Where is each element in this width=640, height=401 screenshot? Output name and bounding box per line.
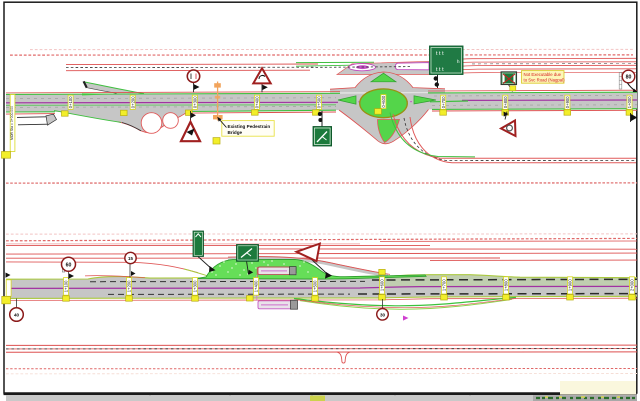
svg-text:1+900: 1+900 xyxy=(568,279,573,291)
svg-text:1+500: 1+500 xyxy=(313,280,318,292)
svg-text:1+000: 1+000 xyxy=(627,96,632,108)
svg-text:t t t: t t t xyxy=(436,51,444,57)
svg-text:0+400: 0+400 xyxy=(255,96,260,108)
svg-text:Not Executable due: Not Executable due xyxy=(524,72,562,77)
svg-text:30: 30 xyxy=(380,312,386,317)
svg-text:MOR Sta = 0+000.000: MOR Sta = 0+000.000 xyxy=(10,106,14,140)
svg-text:80: 80 xyxy=(626,75,632,81)
svg-text:1+300: 1+300 xyxy=(193,280,198,292)
svg-text:0+800: 0+800 xyxy=(503,96,508,108)
svg-text:1+400: 1+400 xyxy=(254,280,259,292)
svg-text:1+200: 1+200 xyxy=(127,280,132,292)
svg-text:to Svc Road (Nagpal): to Svc Road (Nagpal) xyxy=(524,78,566,83)
svg-text:1+100: 1+100 xyxy=(64,280,69,292)
svg-text:Bridge: Bridge xyxy=(228,130,243,135)
svg-text:0+700: 0+700 xyxy=(441,96,446,108)
svg-text:0+300: 0+300 xyxy=(192,96,197,108)
svg-text:0+900: 0+900 xyxy=(565,96,570,108)
svg-text:0+600: 0+600 xyxy=(381,95,386,107)
svg-text:60: 60 xyxy=(66,262,72,268)
svg-text:15: 15 xyxy=(128,256,133,261)
svg-text:t t t: t t t xyxy=(436,67,444,73)
svg-text:1+600: 1+600 xyxy=(380,279,385,291)
svg-text:Existing Pedestrain: Existing Pedestrain xyxy=(228,124,271,129)
svg-text:0+200: 0+200 xyxy=(130,96,135,108)
svg-text:1+800: 1+800 xyxy=(504,279,509,291)
svg-text:0+500: 0+500 xyxy=(317,96,322,108)
svg-text:0+100: 0+100 xyxy=(68,96,73,108)
svg-text:1+700: 1+700 xyxy=(442,279,447,291)
svg-text:2+000: 2+000 xyxy=(630,279,635,291)
svg-text:40: 40 xyxy=(14,313,20,318)
